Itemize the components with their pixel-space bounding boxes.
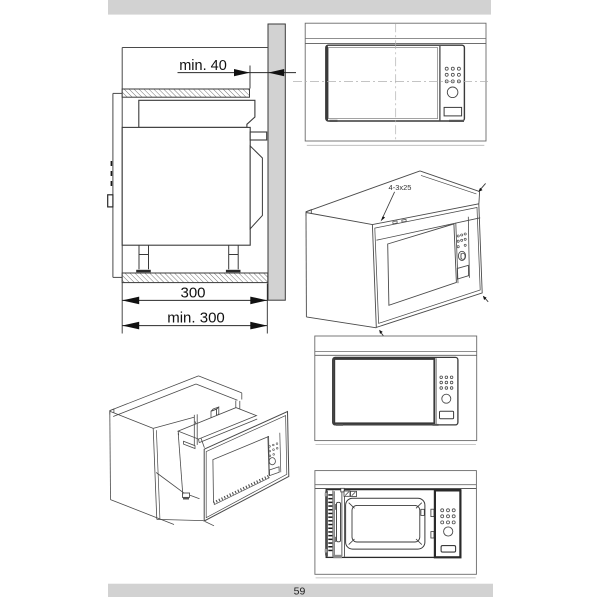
svg-text:min. 300: min. 300 <box>167 310 225 327</box>
svg-text:59: 59 <box>294 585 306 597</box>
svg-text:300: 300 <box>180 285 205 302</box>
svg-text:min. 40: min. 40 <box>179 58 227 74</box>
svg-text:4-3x25: 4-3x25 <box>389 183 412 192</box>
